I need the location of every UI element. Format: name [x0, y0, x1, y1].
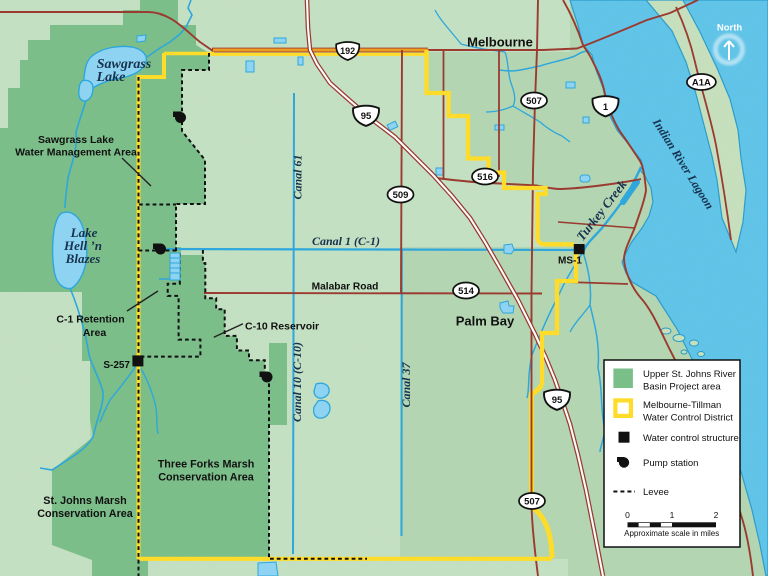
svg-text:Malabar Road: Malabar Road [312, 282, 379, 293]
svg-text:507: 507 [524, 497, 540, 508]
svg-text:A1A: A1A [692, 78, 711, 89]
svg-text:Palm Bay: Palm Bay [456, 314, 515, 329]
svg-text:Upper St. Johns River: Upper St. Johns River [643, 369, 736, 380]
svg-text:North: North [717, 23, 743, 34]
svg-text:0: 0 [625, 510, 630, 520]
svg-text:St. Johns Marsh: St. Johns Marsh [43, 495, 126, 507]
svg-text:Pump station: Pump station [643, 458, 698, 469]
svg-text:Approximate scale in miles: Approximate scale in miles [624, 529, 719, 538]
svg-text:514: 514 [458, 286, 475, 297]
svg-text:Canal 61: Canal 61 [291, 154, 305, 199]
svg-text:MS-1: MS-1 [558, 256, 582, 267]
svg-text:95: 95 [361, 111, 372, 122]
svg-text:Conservation Area: Conservation Area [37, 508, 134, 520]
svg-text:192: 192 [340, 46, 355, 56]
svg-text:Sawgrass Lake: Sawgrass Lake [38, 134, 114, 146]
svg-text:Canal 37: Canal 37 [399, 361, 413, 407]
svg-text:Area: Area [83, 327, 107, 339]
svg-text:Basin Project area: Basin Project area [643, 382, 721, 393]
svg-text:Melbourne: Melbourne [467, 35, 533, 50]
svg-text:1: 1 [603, 102, 609, 113]
svg-text:507: 507 [526, 96, 542, 107]
svg-text:Canal 10 (C-10): Canal 10 (C-10) [290, 342, 304, 422]
svg-text:C-1 Retention: C-1 Retention [56, 314, 124, 326]
svg-text:Lake: Lake [96, 70, 126, 85]
svg-text:509: 509 [393, 190, 409, 201]
svg-text:Conservation Area: Conservation Area [158, 472, 255, 484]
svg-text:Water Management Area: Water Management Area [15, 147, 137, 159]
svg-text:2: 2 [714, 510, 719, 520]
svg-text:Blazes: Blazes [65, 251, 101, 266]
svg-text:S-257: S-257 [103, 360, 130, 371]
svg-text:516: 516 [477, 172, 493, 183]
svg-text:Water Control District: Water Control District [643, 413, 733, 424]
svg-text:Levee: Levee [643, 487, 669, 498]
svg-text:95: 95 [552, 395, 563, 406]
svg-text:1: 1 [670, 510, 675, 520]
svg-text:Three Forks Marsh: Three Forks Marsh [158, 459, 255, 471]
svg-text:Canal 1 (C-1): Canal 1 (C-1) [312, 234, 380, 248]
svg-text:Melbourne-Tillman: Melbourne-Tillman [643, 400, 721, 411]
svg-text:Water control structure: Water control structure [643, 433, 739, 444]
svg-text:C-10 Reservoir: C-10 Reservoir [245, 321, 319, 333]
